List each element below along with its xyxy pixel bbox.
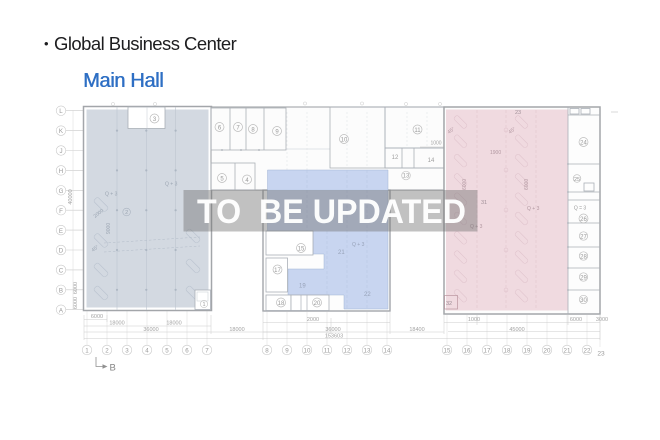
svg-text:2: 2 [105,348,109,355]
svg-text:14: 14 [384,348,391,355]
svg-text:12: 12 [344,348,351,355]
svg-text:21: 21 [564,348,571,355]
svg-text:2: 2 [125,210,128,216]
svg-text:20: 20 [544,348,551,355]
svg-text:15: 15 [298,246,305,252]
svg-text:6000: 6000 [462,179,468,190]
svg-text:10: 10 [341,137,348,143]
svg-text:31: 31 [481,200,487,206]
svg-text:6: 6 [185,348,189,355]
svg-text:7: 7 [205,348,209,355]
svg-text:6000: 6000 [91,314,103,320]
svg-text:J: J [59,148,62,155]
svg-text:24: 24 [580,140,587,146]
svg-text:F: F [59,208,63,215]
svg-text:8: 8 [265,348,269,355]
svg-text:19: 19 [299,284,306,290]
svg-text:23: 23 [597,351,605,358]
svg-text:4: 4 [145,348,149,355]
svg-text:10: 10 [304,348,311,355]
svg-text:C: C [59,268,64,275]
svg-text:1: 1 [202,302,205,308]
svg-text:17: 17 [484,348,491,355]
svg-text:45000: 45000 [509,327,524,333]
svg-text:D: D [59,248,64,255]
svg-text:L: L [59,108,63,115]
svg-text:1900: 1900 [490,150,501,156]
svg-text:A: A [59,308,64,315]
svg-text:Q + 3: Q + 3 [165,182,178,188]
svg-text:6000: 6000 [73,297,79,309]
svg-text:2000: 2000 [307,317,319,323]
svg-text:11: 11 [414,128,421,134]
svg-text:13: 13 [403,174,410,180]
svg-text:6000: 6000 [73,282,79,294]
svg-text:Q + 3: Q + 3 [527,206,540,212]
svg-text:36000: 36000 [325,327,340,333]
svg-text:H: H [59,168,63,175]
svg-text:6000: 6000 [570,317,582,323]
svg-text:5: 5 [165,348,169,355]
svg-text:11: 11 [324,348,331,355]
svg-text:22: 22 [584,348,591,355]
svg-text:Q + 3: Q + 3 [105,192,118,198]
svg-text:26: 26 [580,217,587,223]
svg-text:E: E [59,228,63,235]
svg-text:30: 30 [580,298,587,304]
svg-text:B: B [110,363,116,374]
svg-text:18400: 18400 [409,327,424,333]
svg-text:23: 23 [515,110,521,116]
svg-text:Q = 3: Q = 3 [574,206,587,212]
svg-text:22: 22 [364,292,371,298]
svg-text:K: K [59,128,64,135]
svg-text:TO BE UPDATED: TO BE UPDATED [197,193,466,231]
svg-text:18000: 18000 [229,327,244,333]
svg-text:18000: 18000 [109,321,124,327]
svg-text:18: 18 [504,348,511,355]
svg-text:3: 3 [125,348,129,355]
svg-text:15: 15 [444,348,451,355]
svg-text:9000: 9000 [106,223,112,234]
svg-text:14: 14 [428,158,435,164]
svg-text:B: B [59,288,63,295]
svg-text:3000: 3000 [596,317,608,323]
svg-text:1: 1 [85,348,89,355]
svg-text:9: 9 [285,348,289,355]
svg-text:32: 32 [446,301,452,307]
svg-text:19: 19 [524,348,531,355]
svg-text:20: 20 [314,301,321,307]
svg-text:1000: 1000 [430,141,441,147]
svg-text:16: 16 [464,348,471,355]
svg-text:13: 13 [364,348,371,355]
svg-text:21: 21 [338,250,345,256]
svg-text:1000: 1000 [468,317,480,323]
svg-text:12: 12 [392,155,399,161]
svg-text:18000: 18000 [166,321,181,327]
svg-text:18: 18 [278,301,285,307]
svg-text:25: 25 [574,177,580,183]
svg-text:27: 27 [580,234,587,240]
svg-text:153603: 153603 [325,333,343,339]
svg-text:Q + 3: Q + 3 [352,242,365,248]
svg-text:17: 17 [274,268,281,274]
svg-text:28: 28 [580,254,587,260]
svg-text:6000: 6000 [524,179,530,190]
svg-text:36000: 36000 [143,327,158,333]
svg-text:G: G [59,188,64,195]
svg-text:29: 29 [580,275,587,281]
